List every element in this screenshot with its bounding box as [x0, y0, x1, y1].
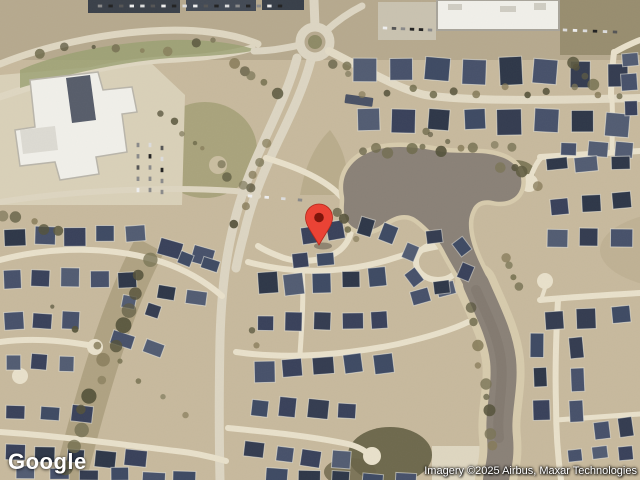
pin-dot	[314, 213, 324, 223]
google-logo[interactable]: Google	[8, 449, 87, 475]
imagery-attribution: Imagery ©2025 Airbus, Maxar Technologies	[424, 465, 637, 477]
satellite-imagery	[0, 0, 640, 480]
map-container[interactable]: Google Imagery ©2025 Airbus, Maxar Techn…	[0, 0, 640, 480]
